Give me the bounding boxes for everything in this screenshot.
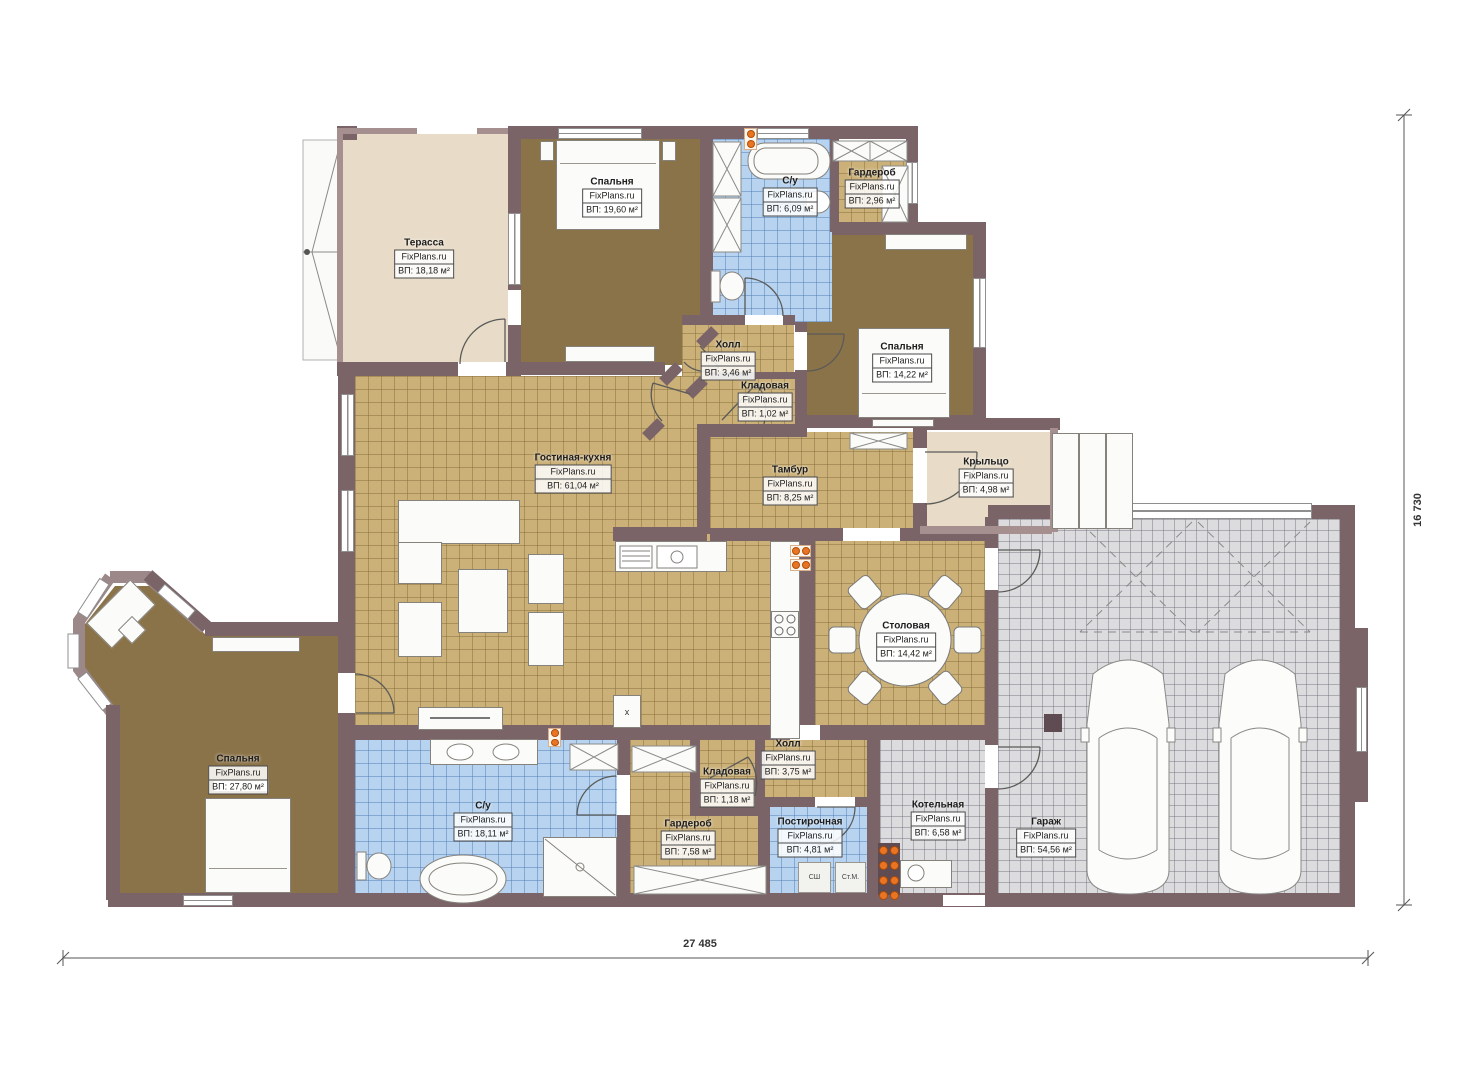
room-label-hall-bottom: Холл FixPlans.ru ВП: 3,75 м² [761, 739, 816, 780]
room-label-hall-top: Холл FixPlans.ru ВП: 3,46 м² [701, 340, 756, 381]
floor-plan: x [0, 0, 1474, 1080]
dimension-height: 16 730 [1412, 493, 1424, 527]
radiator [548, 728, 561, 747]
radiator [790, 559, 811, 571]
room-label-tambur: Тамбур FixPlans.ru ВП: 8,25 м² [763, 465, 818, 506]
washer-label: Ст.М. [842, 874, 859, 881]
dimension-width: 27 485 [683, 938, 717, 950]
boiler-pipes [879, 891, 899, 900]
room-label-storage-top: Кладовая FixPlans.ru ВП: 1,02 м² [738, 381, 793, 422]
car-icon [1081, 660, 1175, 894]
room-label-wardrobe-top: Гардероб FixPlans.ru ВП: 2,96 м² [845, 168, 900, 209]
room-label-storage-bottom: Кладовая FixPlans.ru ВП: 1,18 м² [700, 767, 755, 808]
appliance-grid [620, 546, 652, 568]
room-label-garage: Гараж FixPlans.ru ВП: 54,56 м² [1016, 817, 1076, 858]
car-icon [1213, 660, 1307, 894]
radiator [744, 128, 757, 150]
boiler-pipes [879, 876, 899, 885]
boiler-pipes [879, 861, 899, 870]
boiler-pipes [879, 846, 899, 855]
room-label-dining: Столовая FixPlans.ru ВП: 14,42 м² [876, 621, 936, 662]
bathtub-icon [420, 143, 830, 903]
stove-burners [775, 615, 795, 635]
shower-diagonal [545, 839, 615, 895]
radiator [790, 545, 811, 557]
dryer-box: СШ [798, 862, 831, 893]
sink-icon [447, 191, 924, 881]
toilet-icon [357, 271, 744, 880]
room-label-bedroom-left: Спальня FixPlans.ru ВП: 27,80 м² [208, 754, 268, 795]
dryer-label: СШ [809, 874, 820, 881]
room-label-wardrobe-bottom: Гардероб FixPlans.ru ВП: 7,58 м² [661, 819, 716, 860]
room-label-laundry: Постирочная FixPlans.ru ВП: 4,81 м² [778, 817, 843, 858]
room-label-bedroom-top: Спальня FixPlans.ru ВП: 19,60 м² [582, 177, 642, 218]
room-label-bath-left: С/у FixPlans.ru ВП: 18,11 м² [453, 801, 512, 842]
room-label-porch: Крыльцо FixPlans.ru ВП: 4,98 м² [959, 457, 1014, 498]
washer-box: Ст.М. [835, 862, 866, 893]
room-label-terrace: Терасса FixPlans.ru ВП: 18,18 м² [394, 238, 454, 279]
room-label-boiler: Котельная FixPlans.ru ВП: 6,58 м² [911, 800, 966, 841]
detail-drawing-layer [0, 0, 1474, 1080]
room-label-bath-top: С/у FixPlans.ru ВП: 6,09 м² [763, 176, 818, 217]
room-label-bedroom-right: Спальня FixPlans.ru ВП: 14,22 м² [872, 342, 932, 383]
room-label-living-kitchen: Гостиная-кухня FixPlans.ru ВП: 61,04 м² [535, 453, 612, 494]
